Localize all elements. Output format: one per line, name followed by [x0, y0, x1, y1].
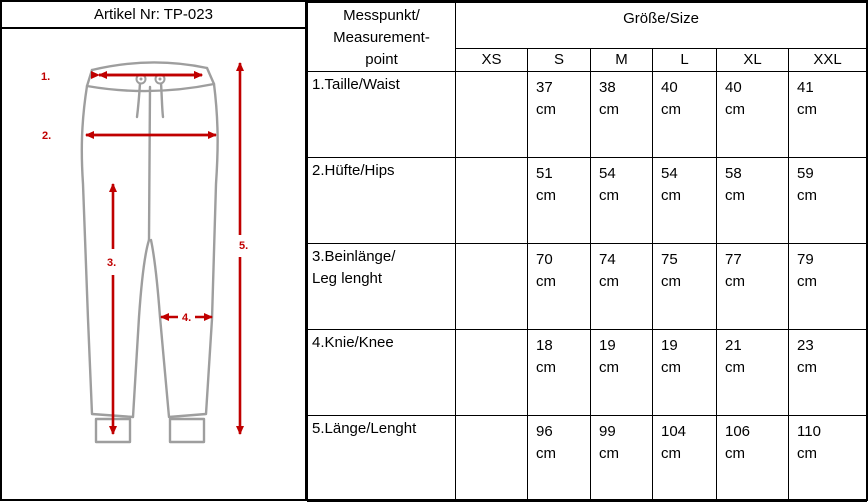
diagram-panel: Artikel Nr: TP-023: [2, 2, 307, 499]
value-cell: 79 cm: [789, 244, 867, 330]
value-cell: 41 cm: [789, 72, 867, 158]
pants-diagram: 1. 2. 3. 4. 5.: [2, 29, 305, 499]
value-cell: 75 cm: [653, 244, 717, 330]
row-label-knee: 4.Knie/Knee: [308, 330, 456, 416]
table-row-knee: 4.Knie/Knee 18 cm 19 cm 19 cm 21 cm 23 c…: [308, 330, 867, 416]
size-group-header: Größe/Size: [456, 3, 867, 49]
size-chart-sheet: Artikel Nr: TP-023: [0, 0, 868, 501]
size-col-header-m: M: [591, 48, 653, 71]
row-label-waist: 1.Taille/Waist: [308, 72, 456, 158]
table-row-leg-length: 3.Beinlänge/ Leg lenght 70 cm 74 cm 75 c…: [308, 244, 867, 330]
value-cell: [456, 330, 528, 416]
value-cell: 40 cm: [653, 72, 717, 158]
value-cell: 23 cm: [789, 330, 867, 416]
row-label-leg-length: 3.Beinlänge/ Leg lenght: [308, 244, 456, 330]
value-cell: 37 cm: [528, 72, 591, 158]
value-cell: [456, 72, 528, 158]
value-cell: 96 cm: [528, 416, 591, 502]
size-table: Messpunkt/ Measurement- point Größe/Size…: [307, 2, 867, 502]
diagram-label-2: 2.: [42, 130, 51, 142]
value-cell: 51 cm: [528, 158, 591, 244]
table-row-hips: 2.Hüfte/Hips 51 cm 54 cm 54 cm 58 cm 59 …: [308, 158, 867, 244]
size-col-header-s: S: [528, 48, 591, 71]
row-label-length: 5.Länge/Lenght: [308, 416, 456, 502]
value-cell: 99 cm: [591, 416, 653, 502]
table-row-waist: 1.Taille/Waist 37 cm 38 cm 40 cm 40 cm 4…: [308, 72, 867, 158]
article-number-header: Artikel Nr: TP-023: [2, 2, 305, 29]
diagram-label-3: 3.: [107, 257, 116, 269]
size-col-header-l: L: [653, 48, 717, 71]
value-cell: 106 cm: [717, 416, 789, 502]
value-cell: 77 cm: [717, 244, 789, 330]
value-cell: 18 cm: [528, 330, 591, 416]
size-col-header-xxl: XXL: [789, 48, 867, 71]
value-cell: 19 cm: [591, 330, 653, 416]
diagram-label-5: 5.: [239, 240, 248, 252]
size-col-header-xl: XL: [717, 48, 789, 71]
value-cell: 104 cm: [653, 416, 717, 502]
value-cell: 59 cm: [789, 158, 867, 244]
diagram-label-4: 4.: [182, 312, 191, 324]
value-cell: [456, 158, 528, 244]
size-table-panel: Messpunkt/ Measurement- point Größe/Size…: [307, 2, 867, 499]
value-cell: 19 cm: [653, 330, 717, 416]
value-cell: [456, 416, 528, 502]
value-cell: 54 cm: [591, 158, 653, 244]
table-row-length: 5.Länge/Lenght 96 cm 99 cm 104 cm 106 cm…: [308, 416, 867, 502]
value-cell: 58 cm: [717, 158, 789, 244]
size-col-header-xs: XS: [456, 48, 528, 71]
value-cell: 110 cm: [789, 416, 867, 502]
value-cell: [456, 244, 528, 330]
measurement-point-header: Messpunkt/ Measurement- point: [308, 3, 456, 72]
pants-outline-icon: [82, 62, 218, 442]
diagram-label-1: 1.: [41, 71, 50, 83]
value-cell: 74 cm: [591, 244, 653, 330]
pants-diagram-svg: 1. 2. 3. 4. 5.: [2, 29, 305, 498]
row-label-hips: 2.Hüfte/Hips: [308, 158, 456, 244]
value-cell: 70 cm: [528, 244, 591, 330]
value-cell: 38 cm: [591, 72, 653, 158]
value-cell: 40 cm: [717, 72, 789, 158]
value-cell: 54 cm: [653, 158, 717, 244]
value-cell: 21 cm: [717, 330, 789, 416]
